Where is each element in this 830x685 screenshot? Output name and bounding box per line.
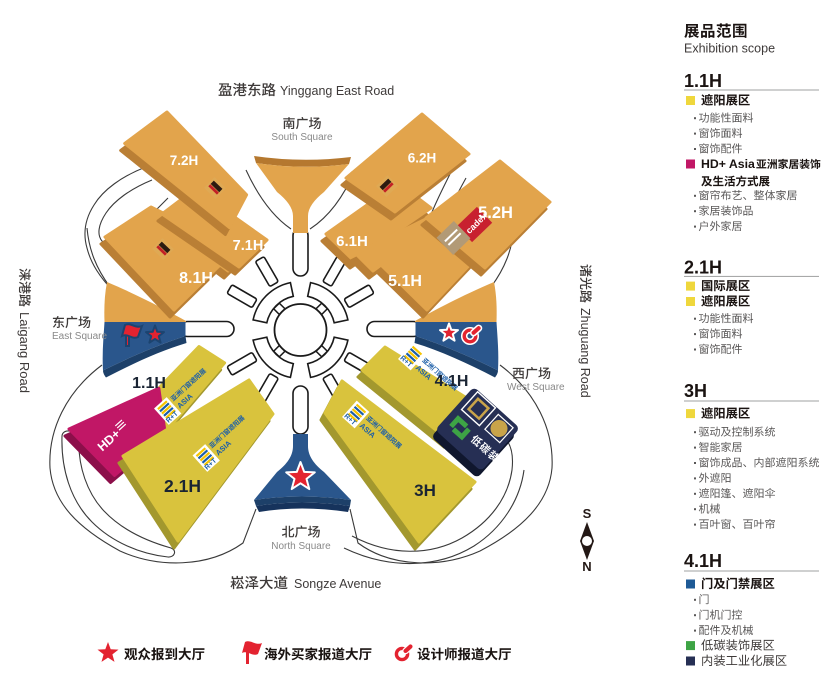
svg-text:HD+ Asia: HD+ Asia — [701, 157, 755, 171]
svg-text:South Square: South Square — [271, 132, 333, 143]
svg-text:Yinggang East Road: Yinggang East Road — [280, 84, 394, 98]
svg-text:5.2H: 5.2H — [478, 204, 513, 222]
svg-text:7.1H: 7.1H — [233, 238, 264, 254]
svg-text:5.1H: 5.1H — [388, 273, 422, 290]
svg-text:6.2H: 6.2H — [408, 151, 437, 166]
svg-text:3H: 3H — [684, 381, 707, 401]
svg-text:4.1H: 4.1H — [435, 373, 469, 390]
svg-text:8.1H: 8.1H — [179, 270, 213, 287]
svg-text:Exhibition scope: Exhibition scope — [684, 42, 775, 56]
svg-text:North Square: North Square — [271, 541, 331, 552]
svg-text:N: N — [582, 559, 591, 574]
svg-text:West Square: West Square — [507, 382, 565, 393]
svg-text:4.1H: 4.1H — [684, 551, 722, 571]
svg-text:1.1H: 1.1H — [132, 375, 166, 392]
svg-text:Songze Avenue: Songze Avenue — [294, 577, 381, 591]
svg-text:1.1H: 1.1H — [684, 71, 722, 91]
svg-text:S: S — [583, 506, 592, 521]
svg-text:East Square: East Square — [52, 331, 107, 342]
svg-text:7.2H: 7.2H — [170, 153, 199, 168]
svg-text:3H: 3H — [414, 481, 436, 500]
svg-text:6.1H: 6.1H — [336, 233, 368, 250]
svg-text:2.1H: 2.1H — [684, 257, 722, 277]
svg-text:2.1H: 2.1H — [164, 476, 201, 496]
svg-text:Laigang Road: Laigang Road — [17, 312, 32, 393]
svg-text:Zhuguang Road: Zhuguang Road — [578, 308, 592, 398]
